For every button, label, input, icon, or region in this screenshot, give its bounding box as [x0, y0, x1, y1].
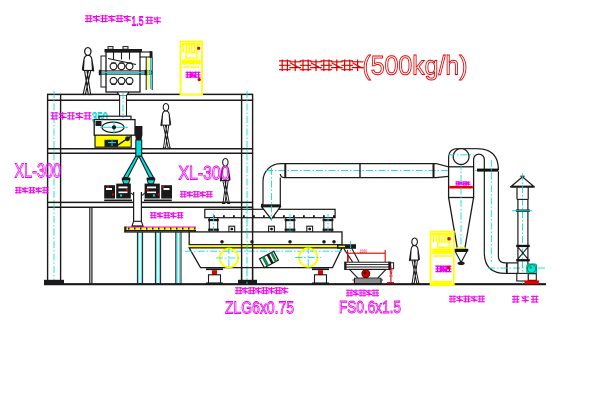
svg-text:1500: 1500 — [360, 248, 368, 253]
svg-text:FS0.6x1.5: FS0.6x1.5 — [339, 297, 401, 317]
svg-text:1.5: 1.5 — [132, 14, 144, 29]
svg-text:ZLG6x0.75: ZLG6x0.75 — [225, 298, 294, 318]
svg-text:(500kg/h): (500kg/h) — [363, 51, 468, 81]
svg-text:548: 548 — [389, 269, 394, 277]
svg-text:XL-300: XL-300 — [179, 164, 230, 185]
svg-text:XL-300: XL-300 — [15, 161, 62, 183]
